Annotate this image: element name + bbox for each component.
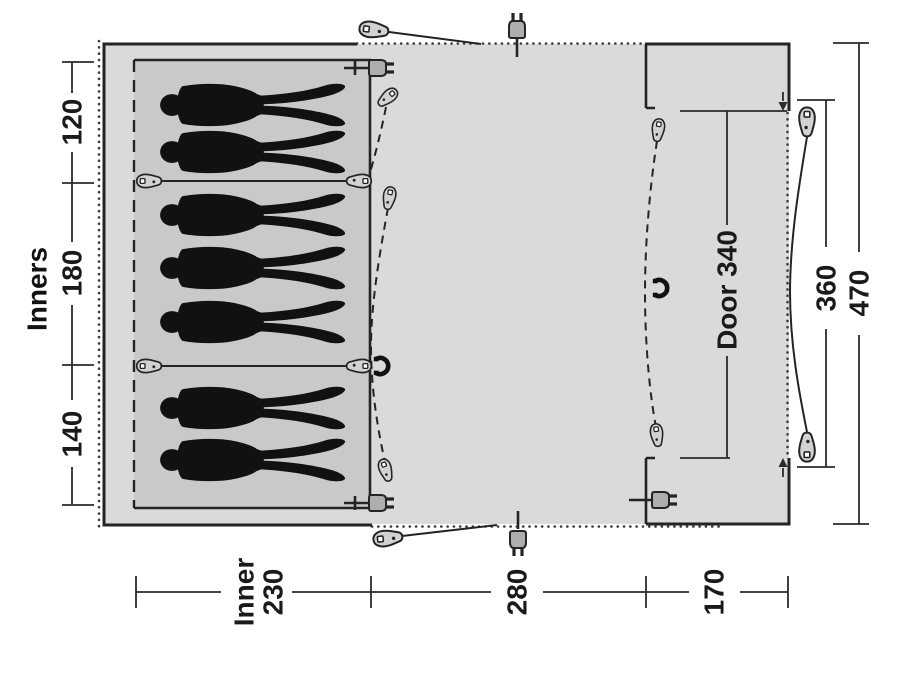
zipper-pull-icon [347,359,372,372]
tent-floorplan-diagram: Inners 120 180 140 360 470 Door 340 Inne… [0,0,906,682]
dim-label-inner-230: 230 [258,569,289,616]
tent-peg-icon [799,433,815,462]
dim-label-door-340: Door 340 [712,230,743,350]
tent-peg-icon [373,529,404,548]
dim-label-180: 180 [57,250,88,297]
zipper-pull-icon [347,174,372,187]
inners-axis-title: Inners [22,247,53,331]
zipper-pull-icon [137,174,162,187]
guy-rope [790,291,807,432]
tent-peg-icon [799,107,815,136]
dim-label-120: 120 [57,99,88,146]
dim-label-280: 280 [502,569,533,616]
dim-label-inner-word: Inner [229,558,260,627]
dim-label-470: 470 [844,270,875,317]
dim-label-140: 140 [57,411,88,458]
tent-floorplan-page: Inners 120 180 140 360 470 Door 340 Inne… [0,0,906,682]
dim-label-170: 170 [699,569,730,616]
tent-peg-icon [359,20,390,39]
dim-label-360: 360 [811,265,842,312]
guy-rope [389,32,481,44]
guy-rope [790,137,807,293]
zipper-pull-icon [137,359,162,372]
